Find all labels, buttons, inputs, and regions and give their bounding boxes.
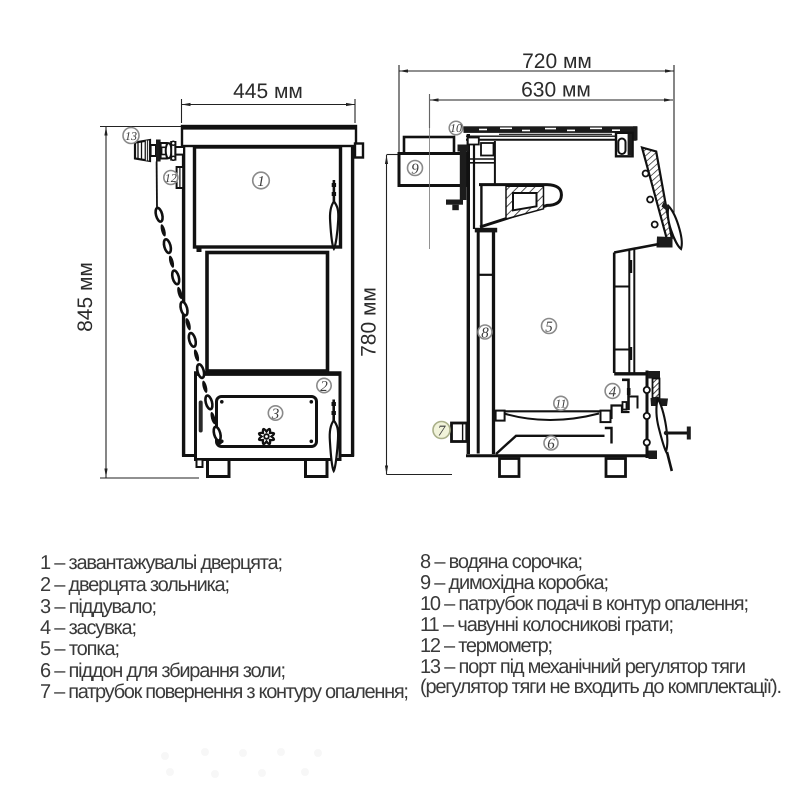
svg-text:4 – засувка;: 4 – засувка; [40,617,137,639]
svg-text:2: 2 [320,379,328,395]
svg-text:5 – топка;: 5 – топка; [40,638,120,660]
svg-text:13: 13 [125,129,137,143]
svg-text:845 мм: 845 мм [74,262,97,332]
svg-text:12 – термометр;: 12 – термометр; [420,635,553,657]
svg-text:10 – патрубок подачі в контур: 10 – патрубок подачі в контур опалення; [420,593,749,615]
svg-text:11 – чавунні колосникові грати: 11 – чавунні колосникові грати; [420,614,674,636]
svg-text:630 мм: 630 мм [521,79,591,102]
svg-text:7 – патрубок повернення з конт: 7 – патрубок повернення з контуру опален… [40,681,409,703]
svg-text:3: 3 [271,407,280,423]
svg-text:(регулятор тяги не входить до: (регулятор тяги не входить до комплектац… [420,676,782,698]
svg-text:445 мм: 445 мм [233,80,303,103]
svg-text:780 мм: 780 мм [358,287,381,357]
svg-text:4: 4 [609,385,617,401]
svg-text:10: 10 [450,121,462,135]
svg-text:1 – завантажувальі дверцята;: 1 – завантажувальі дверцята; [40,552,283,574]
svg-text:2 – дверцята зольника;: 2 – дверцята зольника; [40,574,230,596]
svg-text:8: 8 [481,326,489,342]
svg-text:12: 12 [165,171,177,185]
svg-text:6 – піддон для збирання золи;: 6 – піддон для збирання золи; [40,660,286,682]
svg-text:9 – димохідна коробка;: 9 – димохідна коробка; [420,572,609,594]
svg-text:8 – водяна сорочка;: 8 – водяна сорочка; [420,551,583,573]
svg-text:1: 1 [257,174,265,190]
svg-text:13 – порт під механічний регул: 13 – порт під механічний регулятор тяги [420,656,746,678]
svg-text:5: 5 [545,320,553,336]
svg-text:720 мм: 720 мм [522,50,592,73]
svg-text:3 – піддувало;: 3 – піддувало; [40,596,157,618]
svg-text:11: 11 [555,397,566,411]
svg-text:9: 9 [411,162,419,178]
svg-text:6: 6 [547,437,555,453]
